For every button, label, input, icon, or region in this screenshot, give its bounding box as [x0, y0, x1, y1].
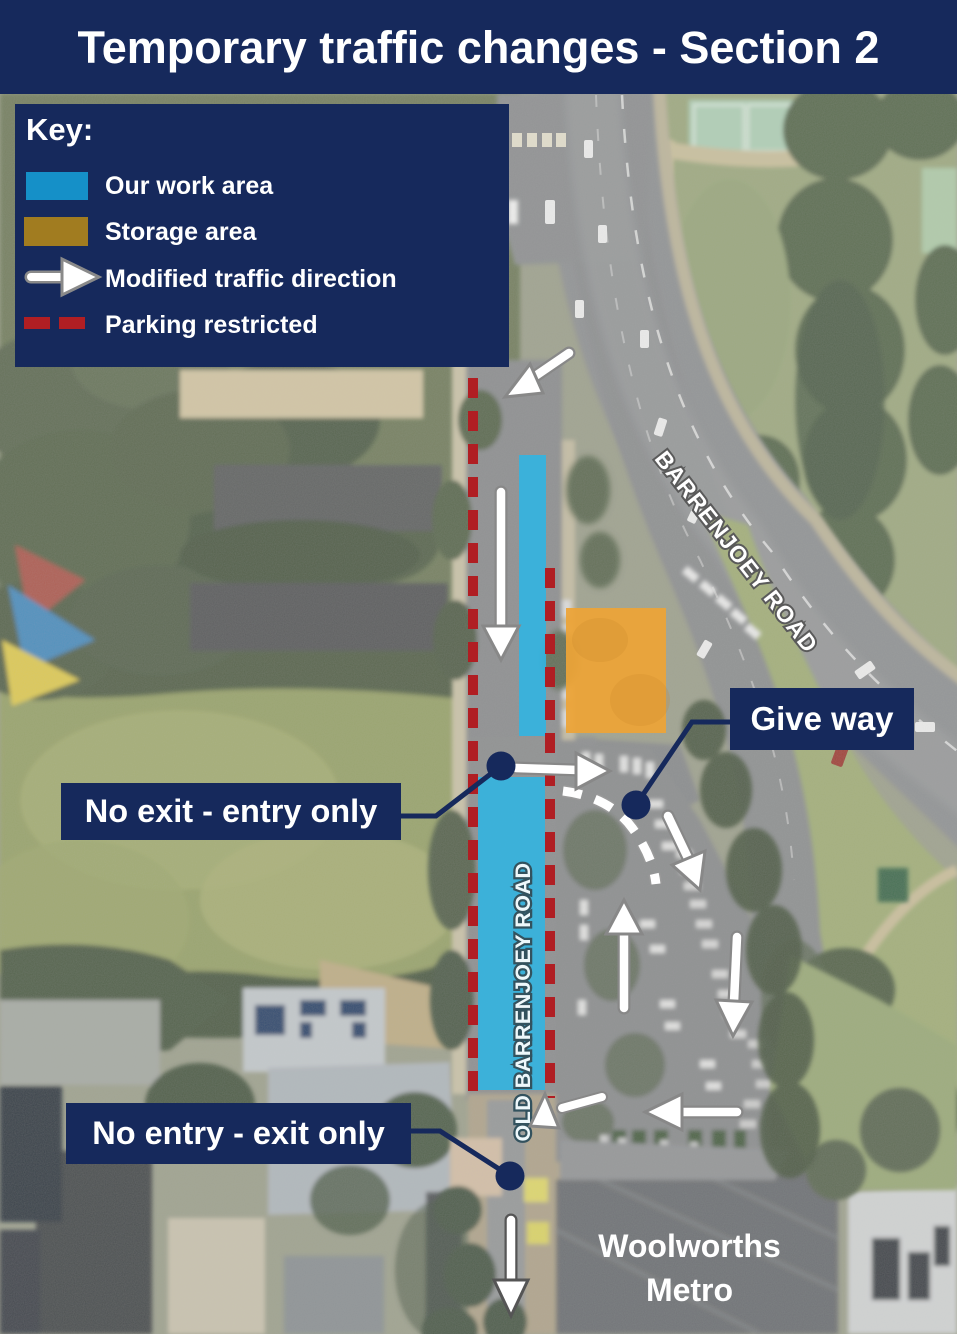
svg-text:OLD BARRENJOEY ROAD: OLD BARRENJOEY ROAD — [511, 862, 535, 1141]
